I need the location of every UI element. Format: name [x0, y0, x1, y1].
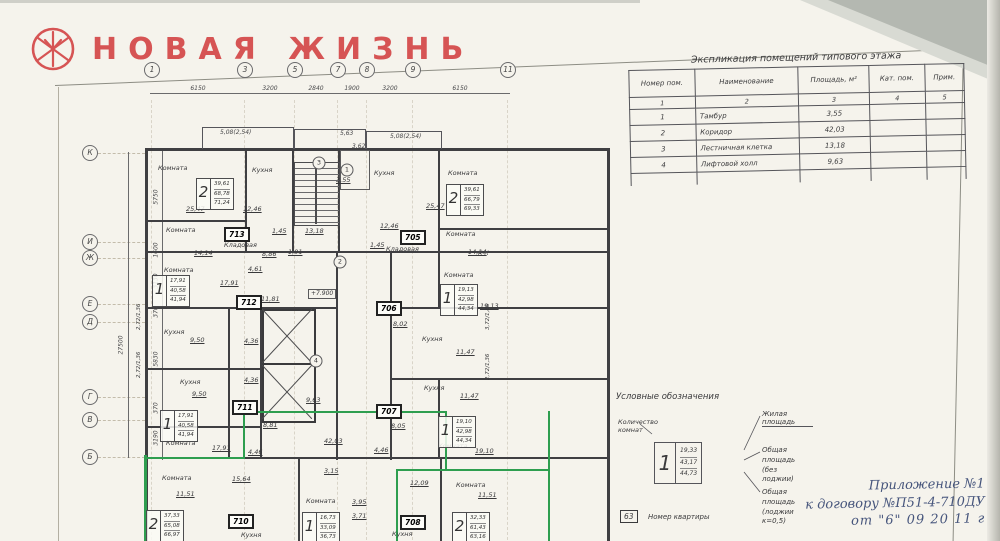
- table-cell: 9,63: [800, 152, 871, 169]
- dimension-value: 1900: [344, 85, 359, 92]
- dimension-line: [150, 93, 510, 94]
- grid-row-bubble: К: [82, 145, 98, 161]
- wall: [298, 459, 300, 541]
- plan-label: 3,72/1,86: [486, 304, 492, 330]
- plan-label: 8,81: [263, 422, 277, 429]
- apartment-stat-box: 239,6168,7871,24: [196, 178, 234, 210]
- room-number-bubble: 1: [341, 164, 354, 177]
- rooms-count: 1: [439, 417, 453, 447]
- grid-row-bubble: Г: [82, 389, 98, 405]
- plan-label: 11,81: [261, 296, 280, 303]
- grid-column-bubble: 5: [287, 62, 303, 78]
- table-cell: [925, 102, 965, 119]
- table-cell: 2: [630, 124, 696, 141]
- table-empty-cell: [926, 166, 966, 179]
- apartment-number-box: 708: [400, 515, 426, 530]
- plan-label: 11,51: [478, 492, 497, 499]
- area-values: 39,6168,7871,24: [211, 179, 233, 209]
- plan-label: 19,10: [475, 448, 494, 455]
- wall: [145, 368, 260, 370]
- plan-label: Комната: [166, 227, 196, 234]
- plan-label: Кухня: [180, 379, 200, 386]
- table-cell: 3,55: [799, 104, 870, 121]
- apartment-number-box: 707: [376, 404, 402, 419]
- rooms-count: 2: [197, 179, 211, 209]
- plan-label: 12,09: [410, 480, 429, 487]
- table-empty-cell: [697, 170, 801, 185]
- area-values: 17,9140,5841,94: [175, 411, 197, 441]
- dimension-value: 6150: [190, 85, 205, 92]
- plan-label: 11,51: [176, 491, 195, 498]
- area-values: 37,3365,0866,97: [161, 511, 183, 541]
- wall: [145, 251, 610, 253]
- plan-label: 5,63: [340, 131, 353, 137]
- plan-label: Кухня: [422, 336, 442, 343]
- area-values: 19,1042,9844,34: [453, 417, 475, 447]
- table-cell: [926, 134, 966, 151]
- table-cell: [870, 103, 926, 120]
- rooms-count: 2: [147, 511, 161, 541]
- plan-label: 4,46: [374, 447, 388, 454]
- plan-label: Кладовая: [386, 246, 419, 253]
- plan-label: Комната: [158, 165, 188, 172]
- axis-line: [151, 100, 152, 540]
- wall: [145, 220, 245, 222]
- plan-label: Комната: [446, 231, 476, 238]
- table-cell: 4: [631, 156, 697, 173]
- wall: [390, 378, 609, 380]
- wall: [336, 253, 338, 460]
- plan-label: 9,50: [192, 391, 206, 398]
- wall: [440, 459, 442, 541]
- apartment-stat-box: 116,7333,0936,73: [302, 512, 340, 541]
- staircase: [294, 162, 340, 226]
- plan-label: 8,05: [391, 423, 405, 430]
- contract-annotation: Приложение №1 к договору №П51-4-710ДУ от…: [690, 475, 986, 533]
- dimension-line: [128, 152, 129, 458]
- plan-label: 8,86: [262, 251, 276, 258]
- plan-label: 11,47: [460, 393, 479, 400]
- table-empty-cell: [631, 172, 697, 186]
- plan-label: 8,02: [393, 321, 407, 328]
- axis-line: [412, 100, 413, 540]
- legend-apartment-number-box: 63: [620, 510, 638, 523]
- dimension-value: 3200: [262, 85, 277, 92]
- logo-icon: [30, 26, 76, 72]
- plan-label: 1,91: [288, 249, 302, 256]
- axis-line: [98, 153, 145, 154]
- plan-label: Комната: [444, 272, 474, 279]
- explication-table: Экспликация помещений типового этажа Ном…: [628, 49, 967, 186]
- apartment-stat-box: 119,1042,9844,34: [438, 416, 476, 448]
- marker-highlight: [396, 469, 550, 471]
- plan-label: 14,14: [194, 250, 213, 257]
- plan-label: 3,71: [352, 513, 366, 520]
- dimension-value: 5750: [153, 189, 160, 204]
- table-cell: 42,03: [799, 120, 870, 137]
- grid-column-bubble: 7: [330, 62, 346, 78]
- axis-line: [98, 242, 145, 243]
- plan-label: 42,03: [324, 438, 343, 445]
- rooms-count: 1: [441, 285, 455, 315]
- apartment-number-box: 710: [228, 514, 254, 529]
- plan-label: 13,18: [305, 228, 324, 235]
- plan-label: 3,95: [352, 499, 366, 506]
- room-number-bubble: 4: [310, 355, 323, 368]
- grid-row-bubble: Е: [82, 296, 98, 312]
- apartment-number-box: 706: [376, 301, 402, 316]
- grid-row-bubble: В: [82, 412, 98, 428]
- table-cell: 1: [630, 108, 696, 125]
- grid-row-bubble: Б: [82, 449, 98, 465]
- table-cell: [925, 118, 965, 135]
- dimension-value: 6150: [452, 85, 467, 92]
- grid-column-bubble: 9: [405, 62, 421, 78]
- axis-line: [98, 420, 145, 421]
- plan-label: 4,46: [248, 449, 262, 456]
- plan-label: 12,46: [380, 223, 399, 230]
- table-header: Номер пом.: [629, 69, 695, 97]
- marker-highlight: [145, 457, 245, 459]
- plan-label: 1,45: [272, 228, 286, 235]
- plan-label: 4,36: [244, 377, 258, 384]
- axis-line: [507, 100, 508, 540]
- grid-column-bubble: 3: [237, 62, 253, 78]
- area-values: 32,3361,4363,16: [467, 513, 489, 541]
- dimension-value: 370: [153, 306, 160, 317]
- plan-label: 9,63: [306, 397, 320, 404]
- table-header: Прим.: [924, 63, 964, 91]
- sheet-frame-left: [58, 87, 59, 541]
- apartment-stat-box: 232,3361,4363,16: [452, 512, 490, 541]
- area-values: 19,1342,9844,34: [455, 285, 477, 315]
- table-cell: [870, 135, 926, 152]
- plan-label: Кухня: [424, 385, 444, 392]
- scan-top-edge: [0, 0, 640, 3]
- area-values: 17,9140,5841,94: [167, 276, 189, 306]
- dimension-value: 3200: [382, 85, 397, 92]
- dimension-total: 27500: [118, 335, 125, 354]
- marker-highlight: [243, 411, 245, 459]
- rooms-count: 1: [303, 513, 317, 541]
- plan-label: 2,72/1,36: [486, 354, 492, 380]
- annotation-line3: от "6" 09 20 11 г: [690, 511, 985, 534]
- plan-label: К-К: [478, 251, 489, 257]
- grid-row-bubble: Ж: [82, 250, 98, 266]
- plan-label: Комната: [164, 267, 194, 274]
- plan-label: 17,91: [220, 280, 239, 287]
- area-values: 39,6166,7969,33: [461, 185, 483, 215]
- dimension-value: 5830: [153, 351, 160, 366]
- scanned-sheet: НОВАЯ ЖИЗНЬ Комната25,47Кухня12,46Комнат…: [0, 0, 1000, 541]
- grid-row-bubble: Д: [82, 314, 98, 330]
- plan-label: 12,46: [243, 206, 262, 213]
- plan-label: 3,15: [324, 468, 338, 475]
- table-header: Кат. пом.: [869, 64, 925, 92]
- table-header: Наименование: [694, 67, 798, 96]
- plan-label: 3,55: [336, 177, 350, 184]
- axis-line: [98, 457, 145, 458]
- wall: [390, 307, 609, 309]
- plan-label: 9,50: [190, 337, 204, 344]
- grid-row-bubble: И: [82, 234, 98, 250]
- plan-label: 17,91: [212, 445, 231, 452]
- plan-label: Комната: [162, 475, 192, 482]
- plan-label: 25,47: [426, 203, 445, 210]
- plan-label: Кухня: [392, 531, 412, 538]
- plan-label: 11,47: [456, 349, 475, 356]
- apartment-stat-box: 117,9140,5841,94: [160, 410, 198, 442]
- table-cell: 3: [630, 140, 696, 157]
- wall: [228, 309, 230, 459]
- grid-column-bubble: 8: [359, 62, 375, 78]
- plan-label: 4,36: [244, 338, 258, 345]
- plan-label: Кухня: [164, 329, 184, 336]
- rooms-count: 2: [453, 513, 467, 541]
- elevator-cross-icon: [262, 309, 312, 419]
- plan-label: Кухня: [374, 170, 394, 177]
- legend: Условные обозначения Количество комнат 1…: [616, 392, 719, 402]
- plan-label: Комната: [306, 498, 336, 505]
- table-column-number: 5: [925, 90, 965, 103]
- apartment-stat-box: 117,9140,5841,94: [152, 275, 190, 307]
- rooms-count: 1: [153, 276, 167, 306]
- rooms-count: 2: [447, 185, 461, 215]
- legend-living-label: Жилая площадь: [762, 410, 813, 427]
- table-cell: [871, 151, 927, 168]
- apartment-number-box: 712: [236, 295, 262, 310]
- rooms-count: 1: [161, 411, 175, 441]
- plan-label: Кухня: [241, 532, 261, 539]
- apartment-stat-box: 237,3365,0866,97: [146, 510, 184, 541]
- dimension-value: 370: [153, 402, 160, 413]
- plan-label: Комната: [448, 170, 478, 177]
- plan-label: 5,08(2,54): [390, 134, 421, 140]
- table-cell: 13,18: [799, 136, 870, 153]
- plan-label: 1,45: [370, 242, 384, 249]
- plan-label: 4,61: [248, 266, 262, 273]
- plan-label: 3,62: [352, 144, 365, 150]
- grid-column-bubble: 11: [500, 62, 516, 78]
- plan-label: Комната: [456, 482, 486, 489]
- room-number-bubble: 3: [313, 157, 326, 170]
- marker-highlight: [243, 411, 447, 413]
- table-empty-cell: [871, 167, 927, 181]
- dimension-value: 3190: [153, 430, 160, 445]
- apartment-stat-box: 119,1342,9844,34: [440, 284, 478, 316]
- plan-label: 2,72/1,36: [137, 304, 143, 330]
- dimension-value: 2840: [308, 85, 323, 92]
- plan-label: 15,64: [232, 476, 251, 483]
- area-values: 16,7333,0936,73: [317, 513, 339, 541]
- plan-label: 5,08(2,54): [220, 130, 251, 136]
- apartment-number-box: 711: [232, 400, 258, 415]
- axis-line: [98, 397, 145, 398]
- room-number-bubble: 2: [334, 256, 347, 269]
- dimension-value: 1600: [153, 242, 160, 257]
- apartment-number-box: 713: [224, 227, 250, 242]
- plan-label: +7.900: [308, 289, 336, 299]
- scan-right-edge: [987, 0, 1000, 541]
- wall: [438, 148, 440, 252]
- axis-line: [98, 258, 145, 259]
- staircase-stringer: [315, 162, 317, 224]
- plan-label: 2,72/1,36: [137, 352, 143, 378]
- grid-column-bubble: 1: [144, 62, 160, 78]
- table-cell: [870, 119, 926, 136]
- apartment-number-box: 705: [400, 230, 426, 245]
- plan-label: Кладовая: [224, 242, 257, 249]
- wall: [607, 148, 610, 541]
- marker-highlight: [548, 411, 550, 541]
- table-header: Площадь, м²: [798, 65, 870, 93]
- table-empty-cell: [800, 168, 871, 182]
- plan-label: Кухня: [252, 167, 272, 174]
- apartment-stat-box: 239,6166,7969,33: [446, 184, 484, 216]
- table-cell: [926, 150, 966, 167]
